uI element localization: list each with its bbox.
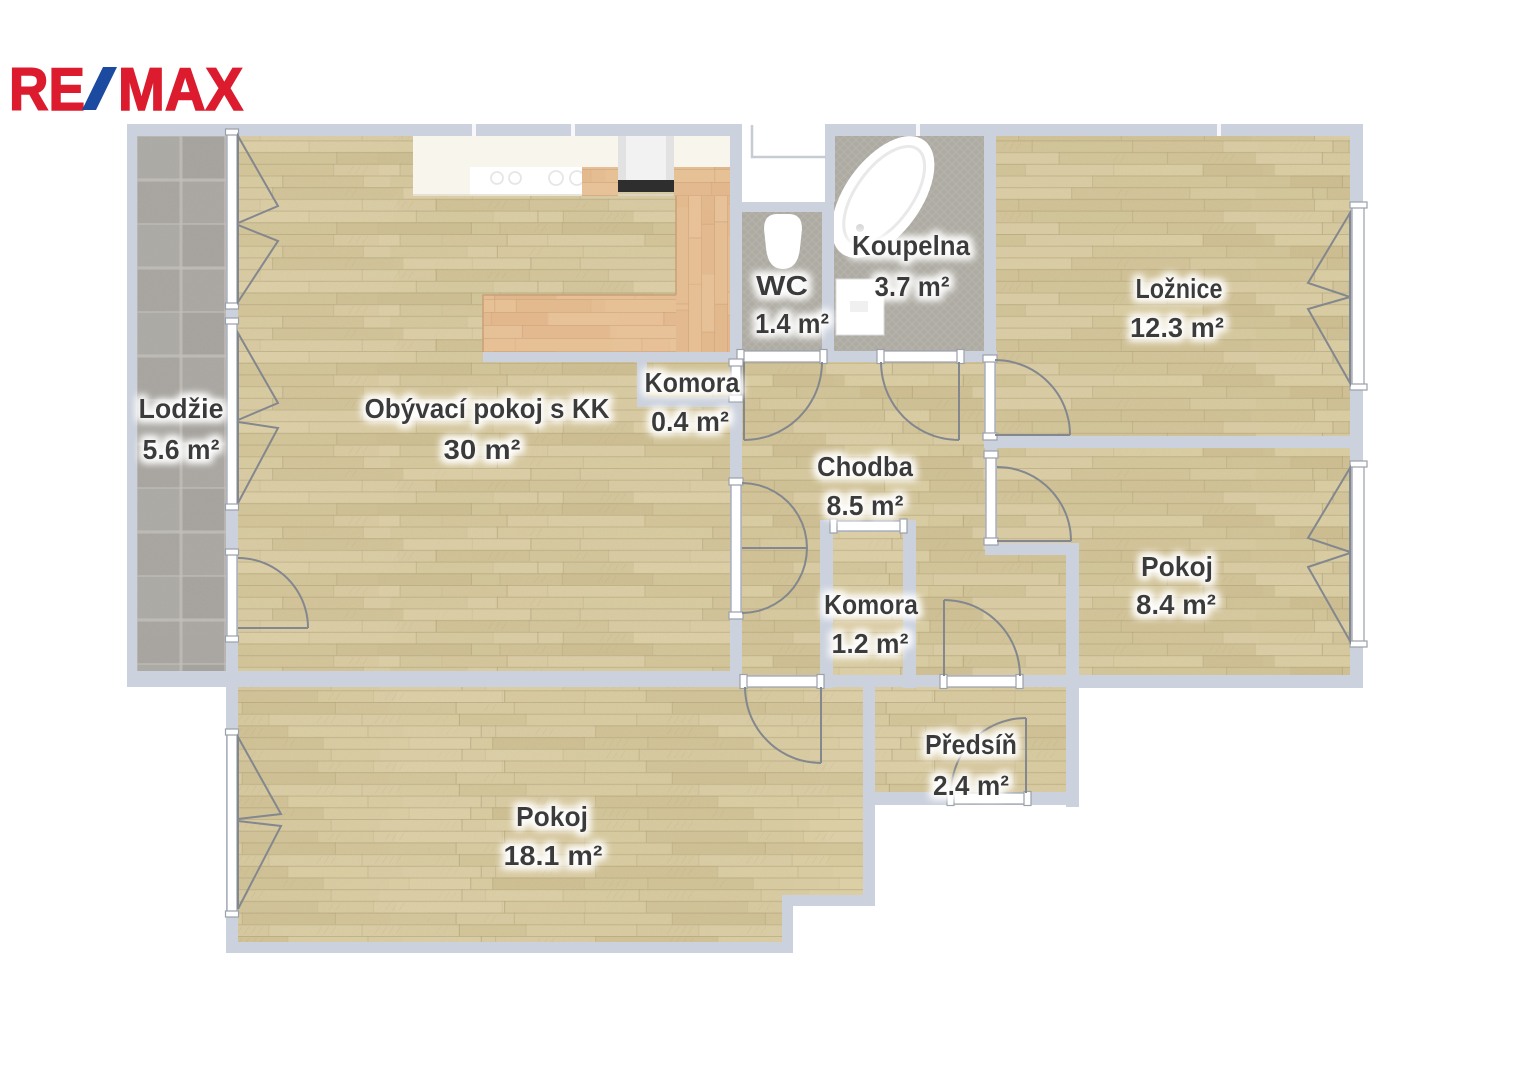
svg-text:Ložnice: Ložnice xyxy=(1136,273,1223,304)
svg-text:Komora: Komora xyxy=(645,367,740,398)
svg-text:8.4 m²: 8.4 m² xyxy=(1136,589,1216,620)
svg-text:5.6 m²: 5.6 m² xyxy=(143,434,220,465)
svg-text:Koupelna: Koupelna xyxy=(852,230,970,261)
svg-text:Lodžie: Lodžie xyxy=(139,393,224,424)
svg-text:MAX: MAX xyxy=(118,56,243,123)
svg-text:Předsíň: Předsíň xyxy=(925,729,1017,760)
svg-text:8.5 m²: 8.5 m² xyxy=(827,490,904,521)
svg-text:1.4 m²: 1.4 m² xyxy=(755,308,829,339)
svg-text:18.1 m²: 18.1 m² xyxy=(504,840,603,871)
svg-text:1.2 m²: 1.2 m² xyxy=(832,628,909,659)
svg-text:Pokoj: Pokoj xyxy=(516,801,588,832)
svg-text:12.3 m²: 12.3 m² xyxy=(1130,312,1224,343)
svg-text:Chodba: Chodba xyxy=(817,451,913,482)
svg-text:Pokoj: Pokoj xyxy=(1141,551,1213,582)
svg-text:2.4 m²: 2.4 m² xyxy=(933,770,1009,801)
svg-text:Komora: Komora xyxy=(824,589,918,620)
svg-text:WC: WC xyxy=(756,270,808,301)
svg-text:30 m²: 30 m² xyxy=(444,434,521,465)
svg-text:3.7 m²: 3.7 m² xyxy=(875,271,950,302)
svg-text:RE: RE xyxy=(9,56,85,123)
svg-text:Obývací pokoj s KK: Obývací pokoj s KK xyxy=(365,393,610,424)
svg-text:0.4 m²: 0.4 m² xyxy=(651,406,729,437)
